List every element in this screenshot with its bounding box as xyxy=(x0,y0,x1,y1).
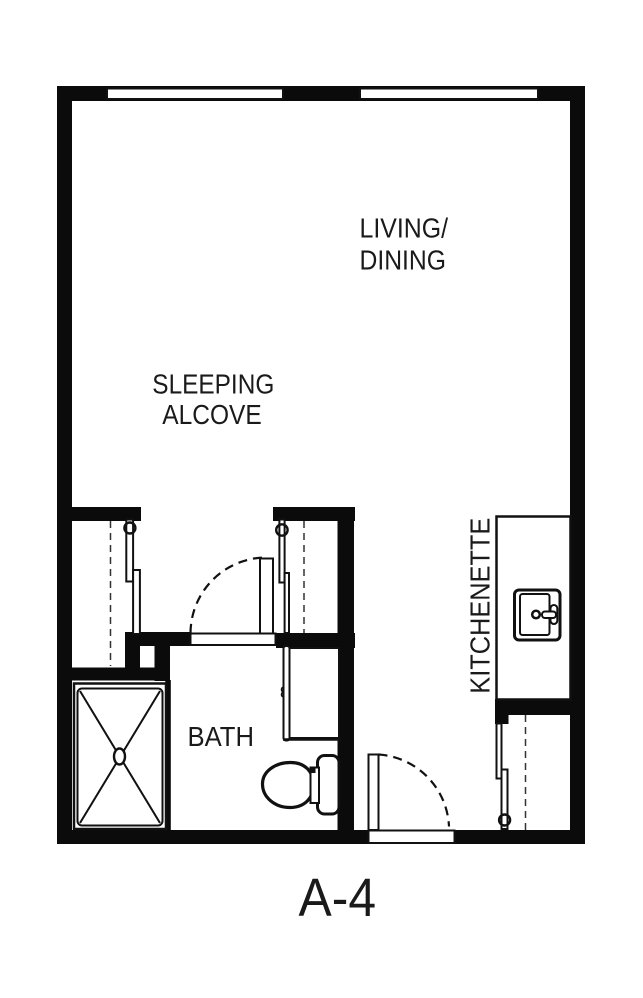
svg-text:ALCOVE: ALCOVE xyxy=(162,399,262,430)
svg-text:LIVING/: LIVING/ xyxy=(360,212,449,243)
svg-text:SLEEPING: SLEEPING xyxy=(152,369,274,400)
svg-text:A-4: A-4 xyxy=(299,869,377,928)
svg-text:BATH: BATH xyxy=(188,721,255,752)
svg-text:KITCHENETTE: KITCHENETTE xyxy=(465,518,496,694)
svg-text:DINING: DINING xyxy=(360,245,447,276)
